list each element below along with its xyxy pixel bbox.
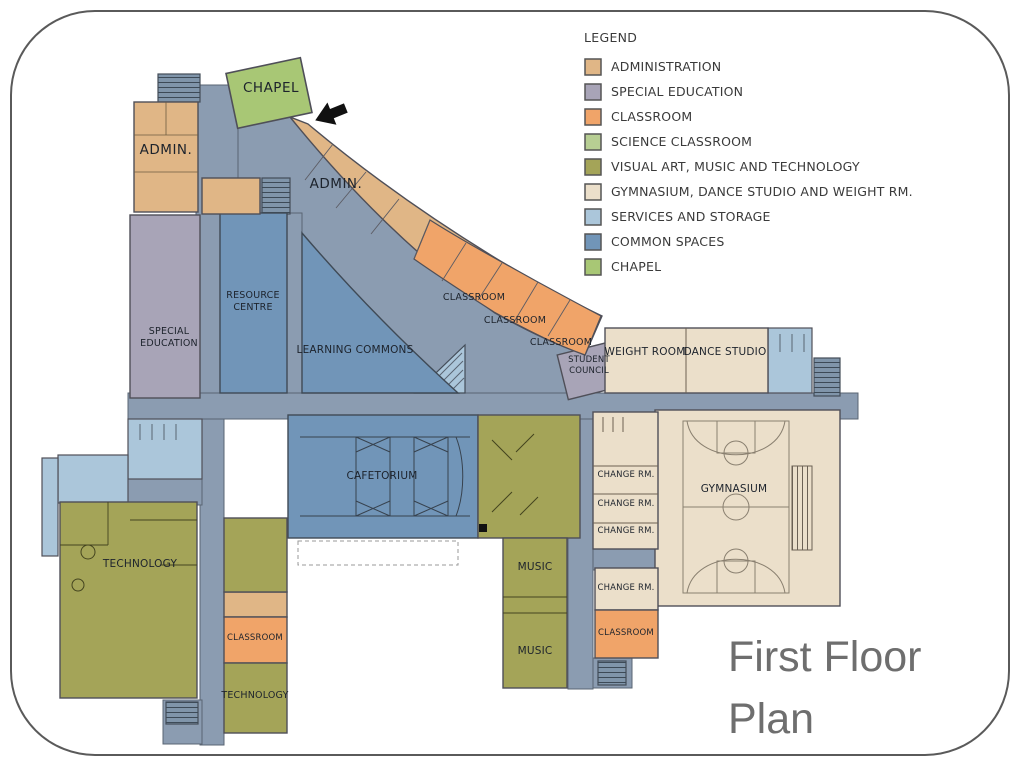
label-dance-studio: DANCE STUDIO: [684, 346, 767, 359]
label-change-rm-3: CHANGE RM.: [597, 526, 654, 537]
label-music-1: MUSIC: [518, 561, 553, 574]
room-services-washrooms-east: [768, 328, 812, 393]
legend-label: SCIENCE CLASSROOM: [611, 134, 752, 149]
slide: CHAPEL ADMIN. ADMIN. SPECIAL EDUCATION R…: [0, 0, 1024, 768]
legend-swatch-gymnasium: [584, 183, 602, 201]
courtyard-canopy-outline: [298, 541, 458, 565]
label-classroom-east: CLASSROOM: [598, 628, 654, 639]
label-gymnasium: GYMNASIUM: [701, 483, 767, 496]
label-classroom-south: CLASSROOM: [227, 633, 283, 644]
legend-swatch-special-education: [584, 83, 602, 101]
legend-item-science-classroom: SCIENCE CLASSROOM: [584, 129, 913, 154]
room-special-education: [130, 215, 200, 398]
legend-item-common-spaces: COMMON SPACES: [584, 229, 913, 254]
room-services-storage-west: [58, 455, 128, 503]
room-art-south: [224, 518, 287, 592]
label-classroom-arc-2: CLASSROOM: [484, 315, 546, 327]
room-technology-west: [60, 502, 197, 698]
label-technology-south: TECHNOLOGY: [221, 690, 288, 702]
legend-label: SPECIAL EDUCATION: [611, 84, 743, 99]
legend-title: LEGEND: [584, 30, 913, 45]
label-change-rm-1: CHANGE RM.: [597, 470, 654, 481]
label-change-rm-2: CHANGE RM.: [597, 499, 654, 510]
legend-swatch-classroom: [584, 108, 602, 126]
label-admin-arc: ADMIN.: [310, 176, 363, 193]
legend-swatch-administration: [584, 58, 602, 76]
label-special-education: SPECIAL EDUCATION: [140, 326, 198, 350]
legend-label: VISUAL ART, MUSIC AND TECHNOLOGY: [611, 159, 860, 174]
label-chapel: CHAPEL: [243, 80, 299, 97]
gym-bleachers: [792, 466, 812, 550]
legend-item-special-education: SPECIAL EDUCATION: [584, 79, 913, 104]
legend-item-chapel: CHAPEL: [584, 254, 913, 279]
legend-item-gymnasium: GYMNASIUM, DANCE STUDIO AND WEIGHT RM.: [584, 179, 913, 204]
legend-swatch-chapel: [584, 258, 602, 276]
room-stage-drama: [478, 415, 580, 538]
legend-item-visual-art-music-tech: VISUAL ART, MUSIC AND TECHNOLOGY: [584, 154, 913, 179]
legend-item-classroom: CLASSROOM: [584, 104, 913, 129]
label-classroom-arc-1: CLASSROOM: [443, 292, 505, 304]
label-learning-commons: LEARNING COMMONS: [297, 344, 414, 357]
legend-label: CLASSROOM: [611, 109, 692, 124]
legend-label: GYMNASIUM, DANCE STUDIO AND WEIGHT RM.: [611, 184, 913, 199]
legend-label: SERVICES AND STORAGE: [611, 209, 771, 224]
legend-item-services-storage: SERVICES AND STORAGE: [584, 204, 913, 229]
legend-swatch-science-classroom: [584, 133, 602, 151]
label-classroom-arc-3: CLASSROOM: [530, 337, 592, 349]
legend-item-administration: ADMINISTRATION: [584, 54, 913, 79]
entrance-arrow-icon: [311, 97, 351, 132]
label-admin-west: ADMIN.: [140, 142, 193, 159]
legend-swatch-common-spaces: [584, 233, 602, 251]
legend-label: COMMON SPACES: [611, 234, 724, 249]
room-services-washrooms-west: [128, 419, 202, 479]
legend: LEGEND ADMINISTRATION SPECIAL EDUCATION …: [584, 30, 913, 279]
room-services-west-edge: [42, 458, 58, 556]
room-admin-south: [224, 592, 287, 617]
room-admin-annex: [202, 178, 260, 214]
label-cafetorium: CAFETORIUM: [346, 470, 417, 483]
legend-label: ADMINISTRATION: [611, 59, 721, 74]
legend-swatch-visual-art-music-tech: [584, 158, 602, 176]
legend-label: CHAPEL: [611, 259, 661, 274]
slide-title: First Floor Plan: [728, 626, 988, 751]
label-resource-centre: RESOURCE CENTRE: [226, 290, 279, 314]
label-change-rm-4: CHANGE RM.: [597, 583, 654, 594]
label-technology-west: TECHNOLOGY: [103, 558, 177, 571]
label-weight-room: WEIGHT ROOM: [605, 346, 686, 359]
legend-swatch-services-storage: [584, 208, 602, 226]
label-music-2: MUSIC: [518, 645, 553, 658]
